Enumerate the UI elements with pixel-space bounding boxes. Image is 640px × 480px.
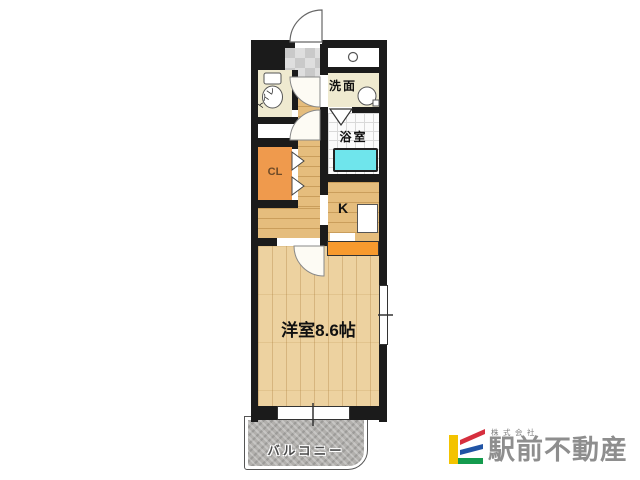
logo-stripe-blue xyxy=(460,444,483,455)
balcony-label: バルコニー xyxy=(248,440,364,459)
floorplan-symbols xyxy=(0,0,640,480)
toilet-tank-icon xyxy=(264,73,281,84)
closet-label: CL xyxy=(258,166,292,178)
company-name: 駅前不動産 xyxy=(488,437,628,464)
bathroom-label: 浴室 xyxy=(328,128,379,145)
entrance-door-arc xyxy=(290,10,322,42)
washroom-door-arc xyxy=(290,77,320,107)
main-room-label: 洋室8.6帖 xyxy=(258,316,379,341)
floorplan-page: トイレ 洗面 浴室 CL K 洋室8.6帖 バルコニー 株式会社 駅前不動産 xyxy=(0,0,640,480)
room-door-arc xyxy=(294,246,324,276)
closet-door-triangle-icon xyxy=(292,177,304,195)
logo-bar-yellow xyxy=(449,435,458,464)
washbasin-tap-icon xyxy=(373,100,379,106)
company-logo: 株式会社 駅前不動産 xyxy=(446,424,636,478)
toilet-door-arc xyxy=(290,110,320,140)
closet-door-triangle-icon xyxy=(292,152,304,170)
washroom-label: 洗面 xyxy=(329,77,357,94)
washer-outlet-icon xyxy=(349,53,358,62)
bathroom-folding-door-icon xyxy=(330,109,352,125)
logo-stripe-red xyxy=(460,429,485,445)
logo-stripe-green xyxy=(458,458,483,464)
kitchen-label: K xyxy=(338,200,348,216)
